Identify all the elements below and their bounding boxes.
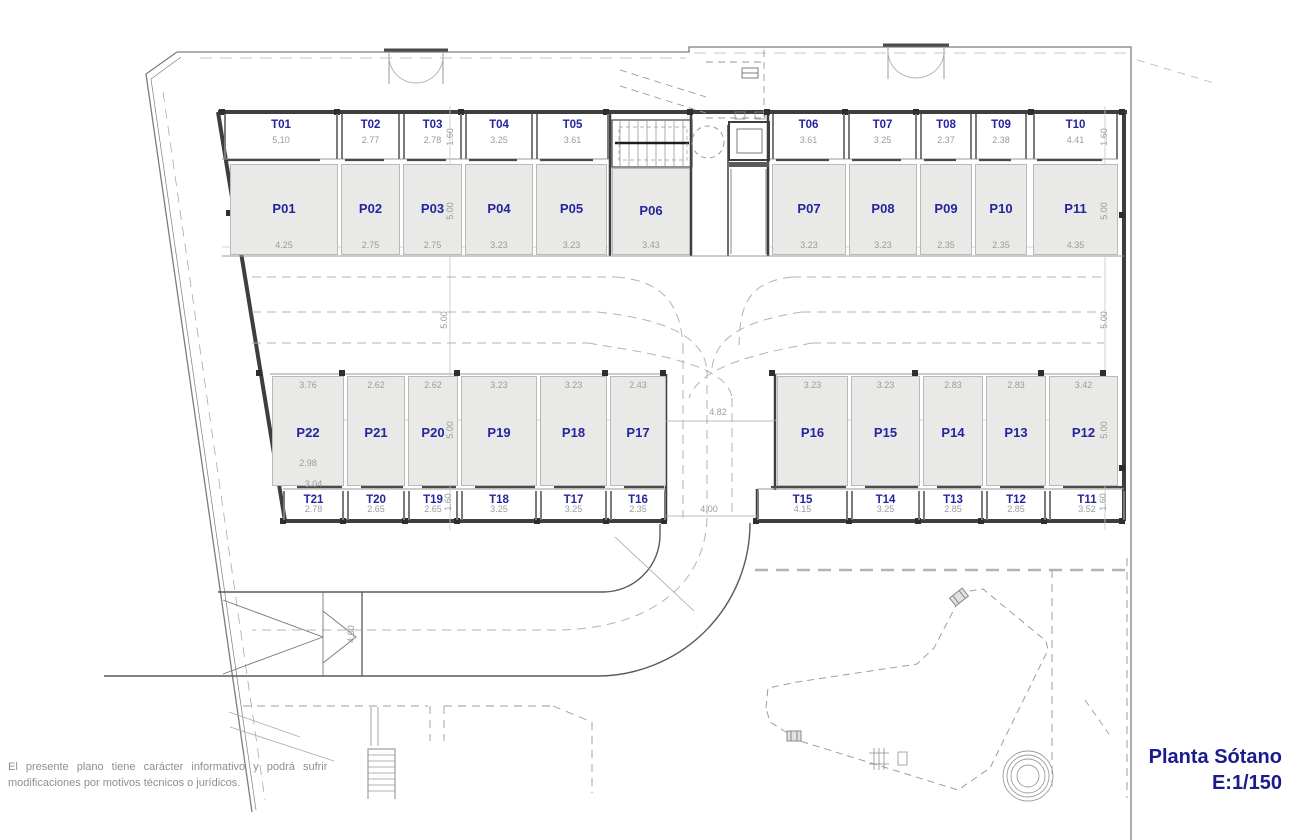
dim-parking-depth: 5.00: [445, 421, 455, 439]
space-label: P10: [989, 201, 1012, 216]
space-label: P03: [421, 201, 444, 216]
storage-unit: T122.85: [986, 491, 1046, 520]
space-label: T01: [271, 119, 291, 131]
space-label: T05: [563, 119, 583, 131]
space-dimension: 3.23: [563, 240, 581, 250]
space-label: P21: [364, 425, 387, 440]
parking-space: P014.25: [230, 164, 338, 255]
space-dimension: 2.62: [367, 380, 385, 390]
space-label: T07: [873, 119, 893, 131]
dim-parking-depth: 5.00: [1099, 421, 1109, 439]
space-dimension: 3.25: [874, 135, 892, 145]
space-dimension: 3.25: [490, 504, 508, 514]
space-label: T06: [799, 119, 819, 131]
space-dimension: 4.41: [1067, 135, 1085, 145]
plan-title: Planta Sótano: [1149, 744, 1282, 770]
parking-space: P142.83: [923, 376, 983, 486]
parking-space: P083.23: [849, 164, 917, 255]
storage-unit: T143.25: [851, 491, 920, 520]
space-dimension: 3.61: [564, 135, 582, 145]
storage-unit: T073.25: [848, 114, 917, 159]
space-dimension: 2.83: [1007, 380, 1025, 390]
space-label: T08: [936, 119, 956, 131]
space-dimension: 2.83: [944, 380, 962, 390]
space-label: P14: [941, 425, 964, 440]
parking-space: P073.23: [772, 164, 846, 255]
space-label: P01: [272, 201, 295, 216]
storage-unit: T173.25: [540, 491, 607, 520]
storage-unit: T113.52: [1049, 491, 1125, 520]
dim-ramp-width: 4.00: [346, 625, 356, 643]
space-label: P22: [296, 425, 319, 440]
space-dimension-secondary: 2.98: [299, 458, 317, 468]
dim-parking-depth: 5.00: [445, 202, 455, 220]
storage-unit: T183.25: [461, 491, 537, 520]
floor-plan-page: P014.25P022.75P032.75P043.23P053.23T015.…: [0, 0, 1290, 840]
space-label: P09: [934, 201, 957, 216]
space-label: T02: [361, 119, 381, 131]
parking-space: P132.83: [986, 376, 1046, 486]
space-dimension: 2.37: [937, 135, 955, 145]
space-dimension: 3.43: [642, 240, 660, 250]
space-dimension: 2.35: [629, 504, 647, 514]
title-block: Planta Sótano E:1/150: [1149, 744, 1282, 796]
parking-space: P212.62: [347, 376, 405, 486]
space-label: P05: [560, 201, 583, 216]
parking-space: P183.23: [540, 376, 607, 486]
ramp: [223, 592, 362, 676]
space-dimension: 2.38: [992, 135, 1010, 145]
disclaimer-note: El presente plano tiene carácter informa…: [8, 760, 338, 792]
space-dimension: 2.35: [992, 240, 1010, 250]
space-label: P12: [1072, 425, 1095, 440]
dim-aisle-width: 5.00: [439, 311, 449, 329]
space-dimension: 3.25: [877, 504, 895, 514]
dim-driveway-clear: 4.00: [700, 504, 718, 514]
parking-space: P102.35: [975, 164, 1027, 255]
space-label: T04: [489, 119, 509, 131]
grate-icon: [869, 748, 889, 770]
space-label: T09: [991, 119, 1011, 131]
space-label: P07: [797, 201, 820, 216]
storage-unit: T154.15: [757, 491, 848, 520]
driveway-road: [104, 523, 750, 676]
dim-storage-height: 1.60: [1098, 493, 1108, 511]
storage-unit: T092.38: [975, 114, 1027, 159]
parking-space: P163.23: [777, 376, 848, 486]
space-label: P19: [487, 425, 510, 440]
storage-unit: T202.65: [347, 491, 405, 520]
space-label: P17: [626, 425, 649, 440]
parking-space: P153.23: [851, 376, 920, 486]
storage-unit: T162.35: [610, 491, 666, 520]
disclaimer-line2: modificaciones por motivos técnicos o ju…: [8, 776, 338, 792]
pool-ladder-icon: [950, 588, 969, 606]
space-dimension: 2.77: [362, 135, 380, 145]
pool-ladder-icon: [787, 731, 801, 741]
spa-circles: [1003, 751, 1053, 801]
gate-right: [883, 45, 949, 79]
dim-storage-height: 1.60: [443, 493, 453, 511]
space-label: P04: [487, 201, 510, 216]
space-dimension: 2.78: [305, 504, 323, 514]
parking-space: P043.23: [465, 164, 533, 255]
space-dimension: 2.78: [424, 135, 442, 145]
space-dimension: 3.23: [565, 380, 583, 390]
space-label: P15: [874, 425, 897, 440]
staircase: [612, 120, 692, 167]
space-dimension: 3.23: [877, 380, 895, 390]
storage-unit: T053.61: [536, 114, 609, 159]
space-dimension: 4.25: [275, 240, 293, 250]
space-dimension: 3.61: [800, 135, 818, 145]
space-label: P06: [639, 203, 662, 218]
storage-unit: T063.61: [772, 114, 845, 159]
storage-unit: T082.37: [920, 114, 972, 159]
dim-storage-height: 1.60: [1099, 128, 1109, 146]
space-dimension: 3.25: [565, 504, 583, 514]
space-label: P08: [871, 201, 894, 216]
dim-parking-depth: 5.00: [1099, 202, 1109, 220]
parking-space: P063.43: [612, 168, 690, 255]
parking-space: P193.23: [461, 376, 537, 486]
space-dimension: 2.65: [367, 504, 385, 514]
space-dimension: 3.52: [1078, 504, 1096, 514]
disclaimer-line1: El presente plano tiene carácter informa…: [8, 760, 338, 776]
space-label: T03: [423, 119, 443, 131]
space-label: P16: [801, 425, 824, 440]
space-label: P02: [359, 201, 382, 216]
plan-scale: E:1/150: [1149, 770, 1282, 796]
space-dimension: 3.42: [1075, 380, 1093, 390]
dim-aisle-width: 5.00: [1099, 311, 1109, 329]
space-dimension: 3.25: [490, 135, 508, 145]
space-dimension: 2.75: [424, 240, 442, 250]
parking-space: P092.35: [920, 164, 972, 255]
space-dimension: 3.23: [874, 240, 892, 250]
space-dimension-secondary: 3.04: [305, 479, 323, 489]
space-dimension: 5.10: [272, 135, 290, 145]
dim-driveway-width: 4.82: [709, 407, 727, 417]
space-dimension: 2.43: [629, 380, 647, 390]
upper-ramp-overlay: [620, 50, 764, 118]
space-dimension: 3.76: [299, 380, 317, 390]
space-dimension: 3.23: [800, 240, 818, 250]
turning-circle: [692, 126, 724, 158]
storage-unit: T212.783.04: [283, 491, 344, 520]
space-dimension: 2.85: [1007, 504, 1025, 514]
space-label: P11: [1064, 201, 1086, 216]
exterior-stair: [368, 707, 395, 799]
space-dimension: 2.75: [362, 240, 380, 250]
space-label: P20: [421, 425, 444, 440]
space-dimension: 2.65: [424, 504, 442, 514]
storage-unit: T043.25: [465, 114, 533, 159]
space-dimension: 4.15: [794, 504, 812, 514]
space-label: T10: [1066, 119, 1086, 131]
storage-unit: T132.85: [923, 491, 983, 520]
pool-overlay: [755, 558, 1127, 801]
parking-space: P172.43: [610, 376, 666, 486]
storage-unit: T015.10: [224, 114, 338, 159]
storage-unit: T022.77: [341, 114, 400, 159]
space-dimension: 2.62: [424, 380, 442, 390]
parking-space: P053.23: [536, 164, 607, 255]
space-dimension: 3.23: [490, 380, 508, 390]
gate-left: [384, 50, 448, 84]
space-dimension: 3.23: [804, 380, 822, 390]
space-label: P13: [1004, 425, 1027, 440]
space-dimension: 2.85: [944, 504, 962, 514]
space-dimension: 4.35: [1067, 240, 1085, 250]
parking-space: P022.75: [341, 164, 400, 255]
parking-space: P223.762.98: [272, 376, 344, 486]
space-dimension: 2.35: [937, 240, 955, 250]
elevator: [729, 112, 769, 254]
dim-storage-height: 1.60: [445, 128, 455, 146]
space-label: P18: [562, 425, 585, 440]
space-dimension: 3.23: [490, 240, 508, 250]
